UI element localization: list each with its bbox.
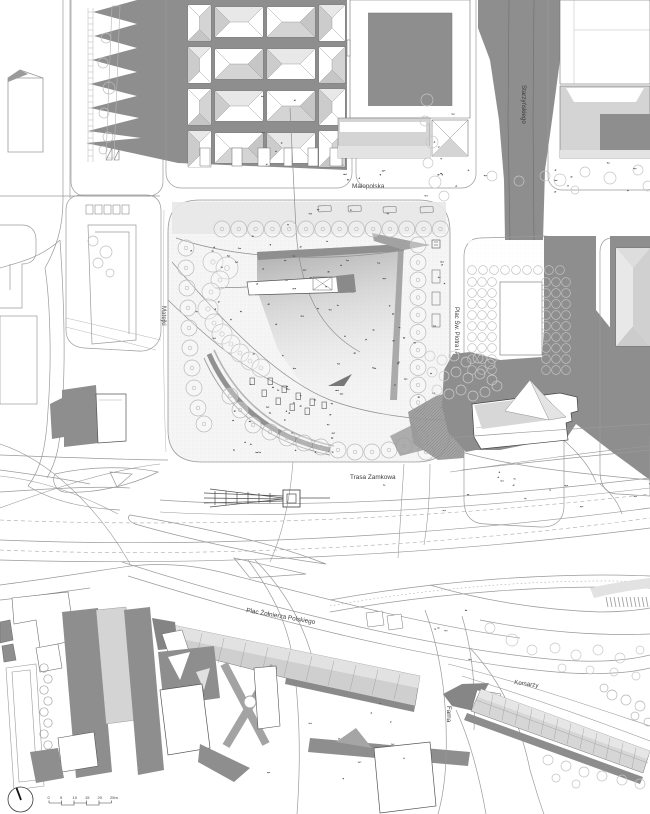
svg-text:15: 15 xyxy=(85,795,90,800)
svg-text:25m: 25m xyxy=(110,795,118,800)
svg-text:Trasa Zamkowa: Trasa Zamkowa xyxy=(350,474,396,481)
svg-text:Farna: Farna xyxy=(445,706,452,723)
svg-text:Małopolska: Małopolska xyxy=(352,183,385,190)
svg-text:10: 10 xyxy=(73,795,78,800)
svg-text:20: 20 xyxy=(98,795,103,800)
svg-text:Starzyńskiego: Starzyńskiego xyxy=(520,85,527,124)
